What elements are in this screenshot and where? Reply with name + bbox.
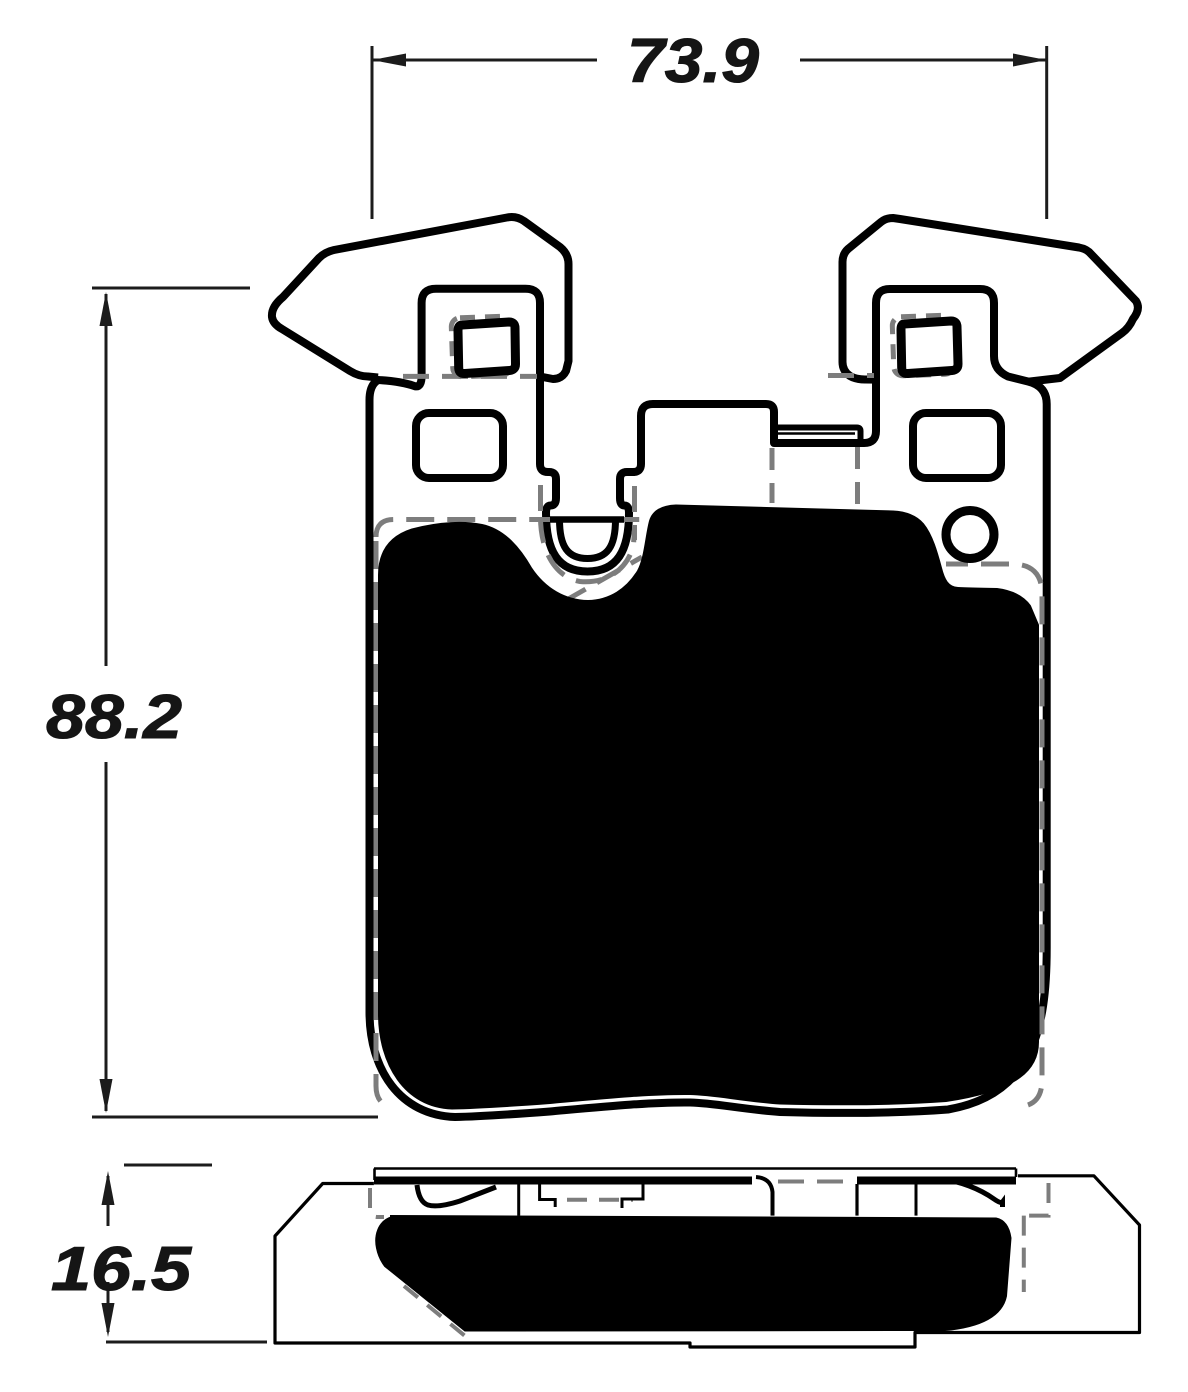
svg-text:73.9: 73.9	[627, 27, 760, 96]
svg-text:88.2: 88.2	[46, 683, 182, 752]
svg-text:16.5: 16.5	[51, 1235, 193, 1304]
